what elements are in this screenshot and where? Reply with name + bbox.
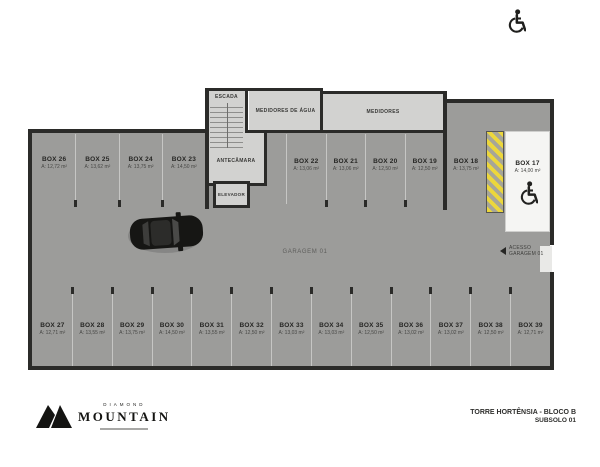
parking-box-38: BOX 38 A: 12,50 m² bbox=[471, 290, 511, 366]
box-label: BOX 33 bbox=[272, 322, 311, 329]
box-label: BOX 29 bbox=[113, 322, 152, 329]
wall-bottom bbox=[28, 366, 554, 370]
box-area: A: 12,72 m² bbox=[33, 164, 75, 170]
box-area: A: 14,50 m² bbox=[153, 330, 192, 336]
box-area: A: 13,55 m² bbox=[192, 330, 231, 336]
elevador-label: ELEVADOR bbox=[218, 192, 245, 197]
box-label: BOX 19 bbox=[406, 158, 445, 165]
box-label: BOX 35 bbox=[352, 322, 391, 329]
sheet-title: TORRE HORTÊNSIA - BLOCO B SUBSOLO 01 bbox=[416, 409, 576, 425]
floor-plan-page: ESCADA MEDIDORES DE ÁGUA MEDIDORES ANTEC… bbox=[0, 0, 600, 467]
box-area: A: 12,50 m² bbox=[471, 330, 510, 336]
box-label: BOX 34 bbox=[312, 322, 351, 329]
arrow-left-icon bbox=[500, 247, 506, 255]
parking-box-32: BOX 32 A: 12,50 m² bbox=[232, 290, 272, 366]
box-area: A: 12,50 m² bbox=[352, 330, 391, 336]
box-label: BOX 30 bbox=[153, 322, 192, 329]
parking-box-20: BOX 20 A: 12,50 m² bbox=[366, 134, 406, 204]
garage-access-label: ACESSO GARAGEM 01 bbox=[500, 245, 550, 257]
box-label: BOX 39 bbox=[511, 322, 550, 329]
box-area: A: 13,75 m² bbox=[113, 330, 152, 336]
box-area: A: 13,02 m² bbox=[392, 330, 431, 336]
parking-box-35: BOX 35 A: 12,50 m² bbox=[352, 290, 392, 366]
brand-logo: DIAMOND MOUNTAIN bbox=[36, 402, 171, 430]
parking-box-23: BOX 23 A: 14,50 m² bbox=[163, 134, 205, 204]
box-label: BOX 31 bbox=[192, 322, 231, 329]
wall-right-lower bbox=[550, 272, 554, 370]
box-label: BOX 38 bbox=[471, 322, 510, 329]
wheelchair-icon bbox=[518, 180, 538, 206]
box-area: A: 12,50 m² bbox=[366, 166, 405, 172]
box-area: A: 13,75 m² bbox=[447, 166, 485, 172]
parking-box-24: BOX 24 A: 13,75 m² bbox=[120, 134, 163, 204]
box-label: BOX 26 bbox=[33, 156, 75, 163]
box-label: BOX 20 bbox=[366, 158, 405, 165]
sheet-title-line2: SUBSOLO 01 bbox=[416, 417, 576, 425]
box-label: BOX 24 bbox=[120, 156, 162, 163]
wall-antecamara-right bbox=[264, 133, 267, 186]
wall-core-bottom bbox=[247, 130, 447, 133]
yellow-hatch-strip bbox=[486, 131, 504, 213]
box-label: BOX 23 bbox=[163, 156, 205, 163]
parking-box-22: BOX 22 A: 13,06 m² bbox=[287, 134, 327, 204]
wall-core-left bbox=[205, 88, 209, 209]
stairs bbox=[210, 103, 243, 148]
escada-label: ESCADA bbox=[208, 94, 245, 100]
car-top-view bbox=[126, 210, 208, 258]
stall-row-bottom: BOX 27 A: 12,71 m² BOX 28 A: 13,55 m² BO… bbox=[33, 290, 550, 366]
wall-escada-top bbox=[205, 88, 249, 91]
box-area: A: 12,50 m² bbox=[232, 330, 271, 336]
box-area: A: 13,03 m² bbox=[272, 330, 311, 336]
box-area: A: 13,06 m² bbox=[287, 166, 326, 172]
box-area: A: 13,03 m² bbox=[312, 330, 351, 336]
box-label: BOX 25 bbox=[76, 156, 118, 163]
box-area: A: 13,75 m² bbox=[120, 164, 162, 170]
wall-medidores-top bbox=[320, 91, 447, 94]
box-area: A: 14,50 m² bbox=[163, 164, 205, 170]
stall-row-top-left: BOX 26 A: 12,72 m² BOX 25 A: 13,62 m² BO… bbox=[33, 134, 205, 204]
parking-box-33: BOX 33 A: 13,03 m² bbox=[272, 290, 312, 366]
wall-top-left bbox=[28, 129, 209, 133]
garage-area-label: GARAGEM 01 bbox=[250, 249, 360, 255]
box-label: BOX 22 bbox=[287, 158, 326, 165]
wheelchair-icon bbox=[506, 8, 526, 34]
box-area: A: 12,71 m² bbox=[511, 330, 550, 336]
box-label: BOX 17 bbox=[506, 160, 549, 167]
parking-box-25: BOX 25 A: 13,62 m² bbox=[76, 134, 119, 204]
parking-box-27: BOX 27 A: 12,71 m² bbox=[33, 290, 73, 366]
parking-box-21: BOX 21 A: 13,06 m² bbox=[327, 134, 367, 204]
parking-box-30: BOX 30 A: 14,50 m² bbox=[153, 290, 193, 366]
box-label: BOX 37 bbox=[431, 322, 470, 329]
medidores-label: MEDIDORES bbox=[323, 109, 443, 115]
box-label: BOX 28 bbox=[73, 322, 112, 329]
wall-left bbox=[28, 129, 32, 370]
brand-tagline-line bbox=[100, 428, 148, 430]
wall-top-right bbox=[443, 99, 554, 103]
box-area: A: 12,71 m² bbox=[33, 330, 72, 336]
parking-box-29: BOX 29 A: 13,75 m² bbox=[113, 290, 153, 366]
box-area: A: 13,02 m² bbox=[431, 330, 470, 336]
parking-box-19: BOX 19 A: 12,50 m² bbox=[406, 134, 445, 204]
parking-box-18: BOX 18 A: 13,75 m² bbox=[447, 134, 485, 210]
box-label: BOX 27 bbox=[33, 322, 72, 329]
parking-box-17-accessible: BOX 17 A: 14,00 m² bbox=[505, 131, 550, 232]
parking-box-39: BOX 39 A: 12,71 m² bbox=[511, 290, 550, 366]
box-label: BOX 18 bbox=[447, 158, 485, 165]
wall-escada-right bbox=[245, 91, 248, 133]
wall-right-upper bbox=[550, 99, 554, 245]
box-label: BOX 32 bbox=[232, 322, 271, 329]
antecamara-label: ANTECÂMARA bbox=[208, 158, 264, 164]
brand-name-label: MOUNTAIN bbox=[78, 409, 171, 425]
elevator: ELEVADOR bbox=[213, 181, 250, 208]
parking-box-37: BOX 37 A: 13,02 m² bbox=[431, 290, 471, 366]
box-area: A: 12,50 m² bbox=[406, 166, 445, 172]
parking-box-26: BOX 26 A: 12,72 m² bbox=[33, 134, 76, 204]
parking-box-36: BOX 36 A: 13,02 m² bbox=[392, 290, 432, 366]
sheet-title-line1: TORRE HORTÊNSIA - BLOCO B bbox=[416, 409, 576, 417]
box-area: A: 13,06 m² bbox=[327, 166, 366, 172]
brand-top-label: DIAMOND bbox=[103, 402, 145, 407]
box-area: A: 13,55 m² bbox=[73, 330, 112, 336]
box-area: A: 13,62 m² bbox=[76, 164, 118, 170]
box-label: BOX 36 bbox=[392, 322, 431, 329]
medidores-agua-label: MEDIDORES DE ÁGUA bbox=[249, 108, 322, 114]
parking-box-28: BOX 28 A: 13,55 m² bbox=[73, 290, 113, 366]
box-label: BOX 21 bbox=[327, 158, 366, 165]
access-line2: GARAGEM 01 bbox=[509, 251, 544, 257]
mountain-icon bbox=[36, 402, 72, 430]
parking-box-31: BOX 31 A: 13,55 m² bbox=[192, 290, 232, 366]
box-area: A: 14,00 m² bbox=[506, 168, 549, 174]
stall-row-top-right: BOX 22 A: 13,06 m² BOX 21 A: 13,06 m² BO… bbox=[286, 134, 444, 204]
parking-box-34: BOX 34 A: 13,03 m² bbox=[312, 290, 352, 366]
wall-agua-top bbox=[247, 88, 323, 91]
